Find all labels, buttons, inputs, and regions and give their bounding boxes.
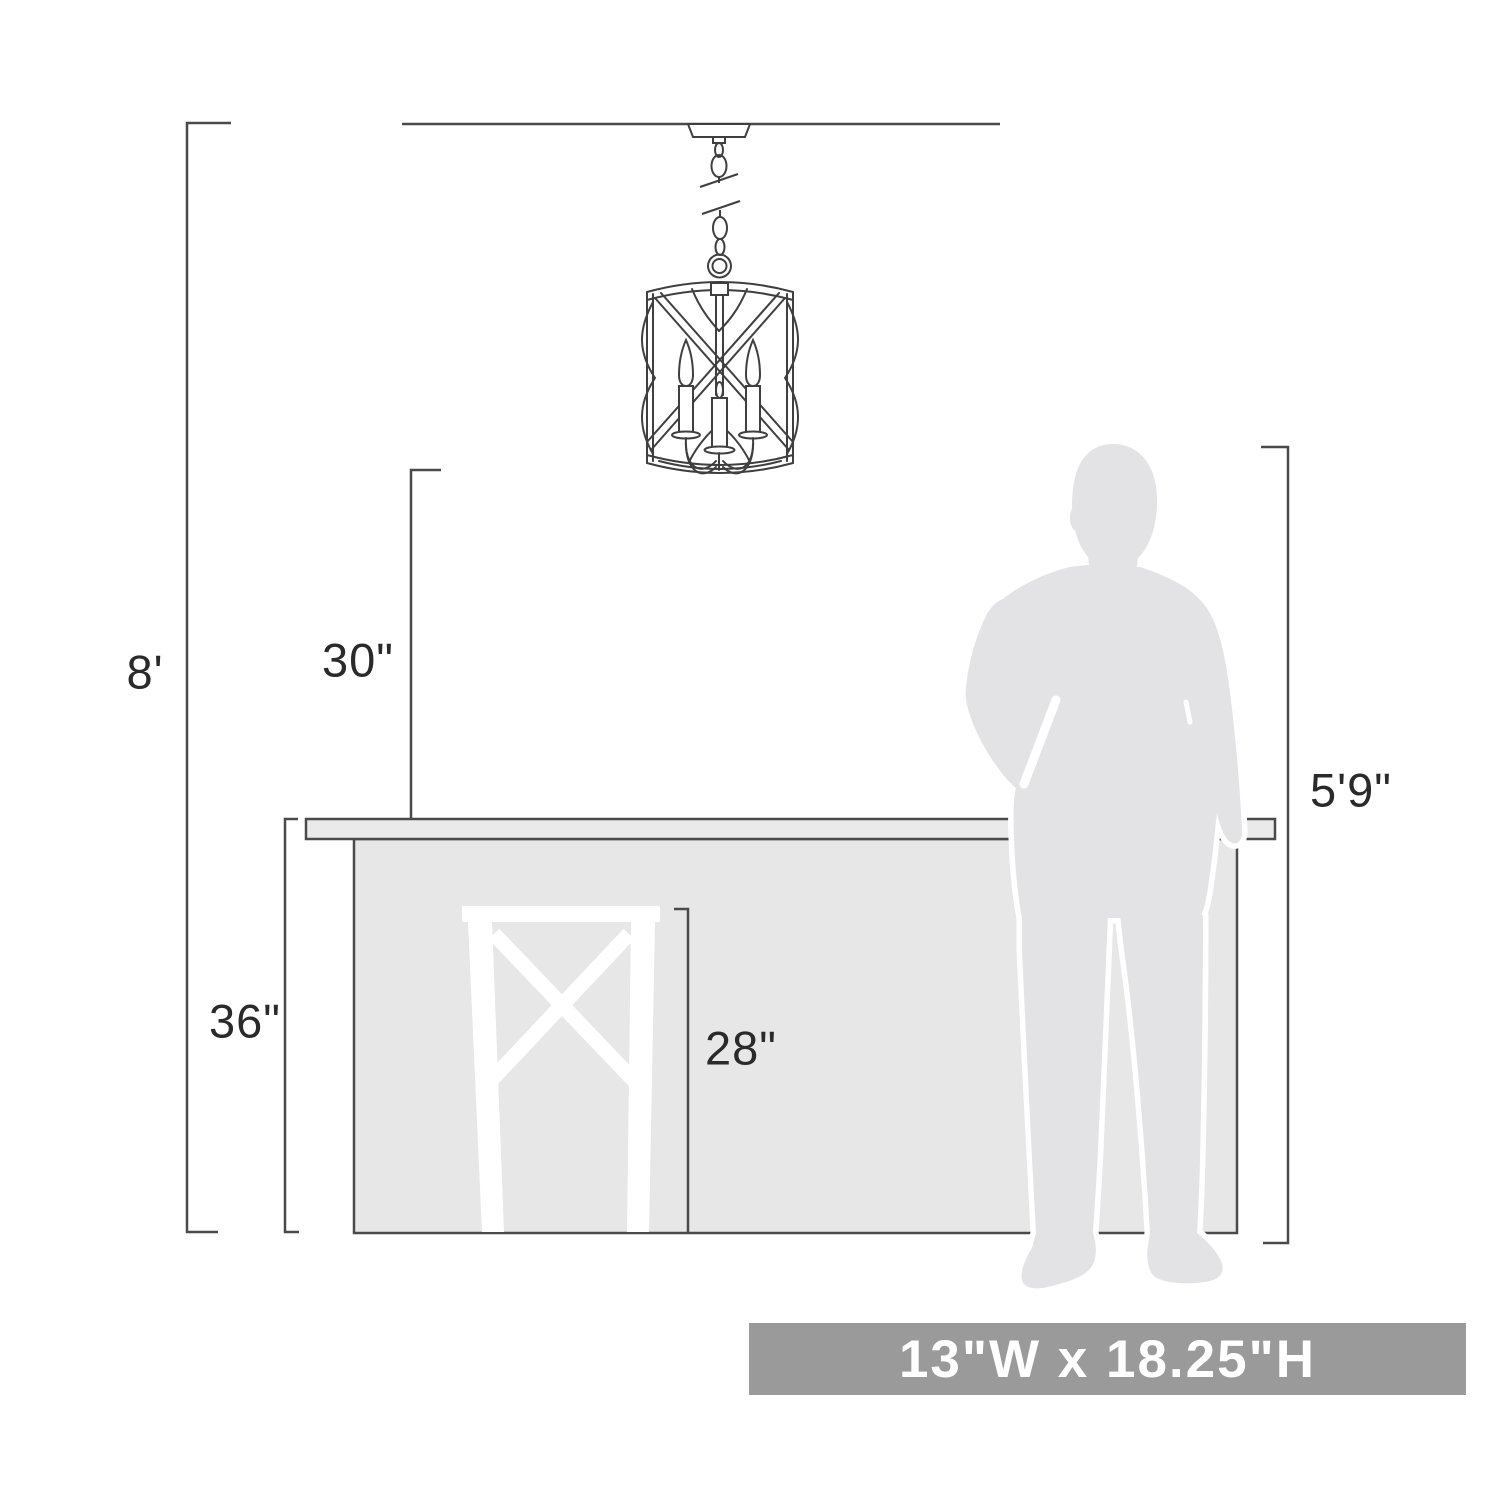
dim-bracket-8ft — [187, 123, 231, 1232]
dim-label-fixture-to-counter: 30" — [322, 633, 394, 688]
size-banner-label: 13"W x 18.25"H — [899, 1329, 1316, 1390]
diagram-canvas — [0, 0, 1500, 1500]
size-banner: 13"W x 18.25"H — [749, 1323, 1466, 1395]
dimension-diagram: 8' 30" 36" 28" 5'9" 13"W x 18.25"H — [0, 0, 1500, 1500]
dim-label-stool-height: 28" — [705, 1021, 777, 1076]
dim-bracket-30in — [411, 470, 441, 818]
hanging-chain — [688, 124, 750, 278]
pendant-light — [642, 282, 798, 473]
dim-label-ceiling-height: 8' — [126, 645, 163, 700]
dim-label-counter-height: 36" — [209, 994, 281, 1049]
dim-label-person-height: 5'9" — [1310, 763, 1392, 818]
chain-break-mark — [700, 174, 738, 187]
dim-bracket-36in — [285, 819, 299, 1232]
dim-bracket-5ft9in — [1261, 447, 1288, 1243]
